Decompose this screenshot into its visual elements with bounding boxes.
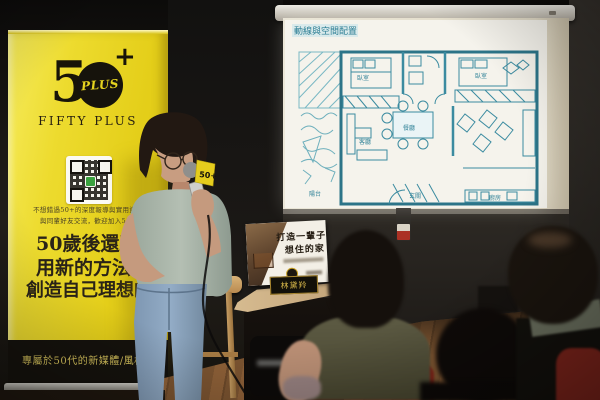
banner-top-rail — [8, 30, 168, 34]
book-title-line2: 想住的家 — [276, 241, 325, 256]
room-label-bedroom2: 臥室 — [475, 72, 487, 80]
microphone-flag-label: 50+ — [199, 170, 218, 181]
floorplan-drawing: 動線與空間配置 — [285, 20, 547, 208]
audience-member-3-hair-highlight — [528, 232, 572, 248]
qr-finder-tl — [70, 160, 84, 174]
audience-member-1-hair — [328, 230, 404, 328]
author-name-plate: 林黛羚 — [270, 275, 319, 295]
room-label-entry: 玄關 — [409, 192, 421, 200]
qr-finder-bl — [70, 188, 84, 202]
screen-bottom-rail — [283, 209, 569, 214]
logo-plus-sign: + — [114, 44, 136, 70]
room-label-balcony: 陽台 — [309, 190, 321, 198]
projected-slide: 動線與空間配置 — [285, 20, 547, 208]
event-photo: 動線與空間配置 — [0, 0, 600, 400]
room-label-living: 客廳 — [359, 138, 371, 146]
qr-center-logo — [85, 176, 96, 187]
room-label-kitchen: 廚房 — [489, 194, 501, 202]
screen-housing-logo — [549, 11, 556, 15]
wall-sign — [397, 224, 410, 240]
author-name: 林黛羚 — [280, 279, 307, 291]
slide-title: 動線與空間配置 — [294, 25, 357, 37]
book-photo-chair — [253, 253, 274, 269]
room-label-bedroom1: 臥室 — [357, 74, 369, 82]
book-subtitle-smudge — [283, 257, 323, 263]
logo-plus-inner-text: PLUS — [81, 77, 120, 94]
audience-chair-right — [556, 348, 600, 400]
audience-member-1-pouch — [283, 376, 321, 400]
room-label-dining: 餐廳 — [403, 124, 415, 132]
